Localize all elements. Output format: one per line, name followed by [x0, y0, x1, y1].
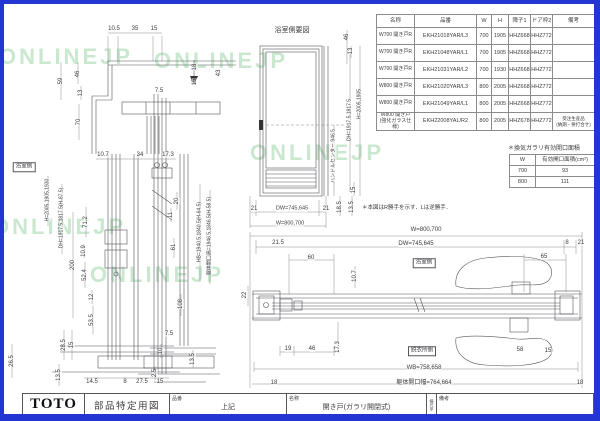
- side-label: 浴室側: [413, 258, 436, 268]
- parts-cell: 800: [477, 96, 492, 113]
- parts-cell: 受注生産品 (納期・要打合せ): [553, 113, 595, 131]
- dimension-label: 8: [123, 379, 126, 385]
- dimension-label: 18: [192, 64, 198, 71]
- doc-type: 部品特定用図: [85, 394, 170, 415]
- vent-table-title: ＊換気ガラリ有効開口面積: [508, 143, 580, 152]
- dimension-label: 18: [577, 380, 584, 386]
- parts-cell: HHZ772: [531, 28, 553, 45]
- side-label: 脱衣所側: [408, 346, 436, 356]
- dimension-label: 10.5: [108, 26, 120, 32]
- dimension-label: 7.5: [155, 88, 163, 94]
- handing-note: ＊本図はR勝手を示す．Lは逆勝手．: [362, 203, 451, 211]
- dimension-label: 200: [70, 260, 76, 270]
- parts-cell: HHZ668: [509, 28, 531, 45]
- product-name-cell: 名称 開き戸(ガラリ開閉式): [287, 394, 427, 415]
- side-label: 浴室側: [13, 162, 36, 172]
- parts-cell: HHZ668: [509, 79, 531, 96]
- dimension-label: DW=745,645: [398, 241, 433, 247]
- parts-column-header: H: [492, 15, 509, 28]
- dimension-label: 10.7: [352, 270, 358, 282]
- vent-cell: 800: [510, 177, 536, 188]
- dimension-label: 21: [578, 240, 585, 246]
- dimension-label: 61: [171, 244, 177, 251]
- dimension-label: WB=758,658: [407, 365, 442, 371]
- dimension-label: H=2005,1905: [358, 89, 363, 119]
- parts-column-header: 備考: [553, 15, 595, 28]
- parts-cell: [553, 28, 595, 45]
- dimension-label: 8: [565, 240, 568, 246]
- parts-cell: 700: [477, 62, 492, 79]
- parts-cell: EKH21048YAR/L1: [415, 45, 477, 62]
- parts-cell: EKH21031YAR/L2: [415, 62, 477, 79]
- parts-table-header: 名称品番WH障子1ドア枠2備考: [377, 15, 595, 28]
- parts-cell: 700: [477, 28, 492, 45]
- dimension-label: H=2005,1905,1930: [46, 179, 51, 222]
- dimension-label: 34: [137, 152, 144, 158]
- dimension-label: 60: [308, 255, 315, 261]
- parts-cell: HHZ772: [531, 96, 553, 113]
- scale-cell: 縮尺非: [427, 394, 437, 415]
- parts-cell: 2005: [492, 79, 509, 96]
- parts-cell: [553, 62, 595, 79]
- dimension-label: DH=1917.5,1817.5: [348, 99, 353, 141]
- vent-cell: 700: [510, 166, 536, 177]
- parts-cell: W700 開き戸R: [377, 45, 415, 62]
- dimension-label: 21: [323, 206, 330, 212]
- vent-table-header: W有効開口面積(cm²): [510, 155, 595, 166]
- dimension-label: W=800,700: [276, 221, 304, 227]
- parts-cell: HHZ772: [531, 113, 553, 131]
- parts-cell: 1905: [492, 28, 509, 45]
- dimension-label: 58: [517, 347, 524, 353]
- dimension-label: 20: [174, 198, 180, 205]
- table-row: W700 開き戸REKH21031YAR/L27001930HHZ668HHZ7…: [377, 62, 595, 79]
- dimension-label: 18: [271, 380, 278, 386]
- table-row: W700 開き戸REKH21048YAR/L17001905HHZ668HHZ7…: [377, 45, 595, 62]
- parts-cell: 2005: [492, 96, 509, 113]
- parts-cell: [553, 96, 595, 113]
- dimension-label: HB=1940.5,1840.5(H-64.5): [198, 202, 203, 262]
- table-row: W700 開き戸REKH21018YAR/L37001905HHZ668HHZ7…: [377, 28, 595, 45]
- parts-cell: [553, 79, 595, 96]
- dimension-label: 13.5: [349, 201, 355, 213]
- vent-cell: 111: [536, 177, 595, 188]
- parts-cell: EKH21018YAR/L3: [415, 28, 477, 45]
- parts-cell: 700: [477, 45, 492, 62]
- dimension-label: 71.2: [83, 216, 89, 228]
- dimension-label: 15: [351, 187, 357, 194]
- product-name-value: 開き戸(ガラリ開閉式): [287, 402, 426, 412]
- dimension-label: 46: [309, 346, 316, 352]
- dimension-label: 15: [157, 379, 164, 385]
- table-row: W800 開き戸REKH21020YAR/L38002005HHZ668HHZ7…: [377, 79, 595, 96]
- remarks-cell: 備考: [437, 394, 593, 415]
- parts-cell: HHZ668: [509, 96, 531, 113]
- toto-logo: TOTO: [23, 394, 85, 415]
- part-number-value: 上記: [170, 402, 286, 412]
- dimension-label: 70: [76, 119, 82, 126]
- dimension-label: 15: [151, 26, 158, 32]
- dimension-label: 13: [78, 90, 84, 97]
- dimension-label: 22: [242, 292, 248, 299]
- parts-cell: HHZ772: [531, 62, 553, 79]
- dimension-label: 11: [168, 212, 174, 218]
- part-number-label: 品番: [172, 395, 182, 402]
- dimension-label: 28.5: [61, 339, 67, 351]
- dimension-label: 15: [545, 348, 552, 354]
- dimension-label: 52.4: [82, 269, 88, 281]
- dimension-label: 18.5: [337, 201, 343, 213]
- dimension-label: 13.5: [56, 369, 62, 381]
- scale-text: 縮尺非: [430, 399, 434, 411]
- dimension-label: 14.5: [86, 379, 98, 385]
- dimension-label: 19: [285, 346, 292, 352]
- vent-column-header: W: [510, 155, 536, 166]
- parts-column-header: 名称: [377, 15, 415, 28]
- parts-cell: HHZ678: [509, 113, 531, 131]
- dimension-label: 17.3: [162, 152, 174, 158]
- dimension-label: 13: [348, 48, 354, 55]
- dimension-label: 21: [251, 206, 258, 212]
- dimension-label: 53.5: [89, 314, 95, 326]
- part-number-cell: 品番 上記: [170, 394, 287, 415]
- parts-cell: 1930: [492, 62, 509, 79]
- dimension-label: 59: [58, 78, 64, 85]
- table-row: W800 開き戸REKH21049YAR/L18002005HHZ668HHZ7…: [377, 96, 595, 113]
- parts-cell: HHZ772: [531, 45, 553, 62]
- elevation-title: 浴室側要図: [275, 25, 310, 35]
- parts-cell: W800 開き戸R: [377, 79, 415, 96]
- table-row: W800 開き戸 (強化ガラス仕様)EKH22008YAL/R28002005H…: [377, 113, 595, 131]
- dimension-label: 躯体開口高=1946.5,1846.5(H-58.5): [208, 197, 213, 275]
- dimension-label: 17.3: [335, 341, 341, 353]
- dimension-label: 27.5: [136, 379, 148, 385]
- dimension-label: 21.5: [272, 240, 284, 246]
- parts-cell: 800: [477, 113, 492, 131]
- dimension-label: 46: [75, 71, 81, 78]
- parts-cell: 1905: [492, 45, 509, 62]
- dimension-label: ハンドルセンター 946.5: [332, 129, 337, 183]
- dimension-label: 2.5: [152, 369, 158, 377]
- dimension-label: 15: [192, 79, 198, 86]
- dimension-label: 65: [541, 254, 548, 260]
- dimension-label: 43: [216, 70, 222, 77]
- vent-cell: 93: [536, 166, 595, 177]
- drawing-sheet: ONLINEJPONLINEJPONLINEJPONLINEJPONLINEJP: [0, 0, 600, 421]
- dimension-label: 13.5: [190, 353, 196, 365]
- parts-cell: W700 開き戸R: [377, 28, 415, 45]
- product-name-label: 名称: [289, 395, 299, 402]
- parts-column-header: 品番: [415, 15, 477, 28]
- vent-column-header: 有効開口面積(cm²): [536, 155, 595, 166]
- dimension-label: W=800,700: [411, 227, 442, 233]
- dimension-label: 10.7: [97, 152, 109, 158]
- parts-cell: HHZ668: [509, 62, 531, 79]
- table-row: 70093: [510, 166, 595, 177]
- parts-cell: EKH21020YAR/L3: [415, 79, 477, 96]
- parts-cell: W800 開き戸R: [377, 96, 415, 113]
- parts-cell: W700 開き戸R: [377, 62, 415, 79]
- parts-cell: EKH22008YAL/R2: [415, 113, 477, 131]
- parts-table: 名称品番WH障子1ドア枠2備考 W700 開き戸REKH21018YAR/L37…: [376, 14, 595, 131]
- dimension-label: 26.5: [9, 355, 15, 367]
- dimension-label: 躯体開口幅=764,664: [396, 380, 451, 386]
- dimension-label: 12: [89, 294, 95, 301]
- parts-cell: HHZ668: [509, 45, 531, 62]
- parts-cell: EKH21049YAR/L1: [415, 96, 477, 113]
- dimension-label: 35: [132, 26, 139, 32]
- vent-area-table: W有効開口面積(cm²) 70093800111: [509, 154, 595, 188]
- parts-column-header: W: [477, 15, 492, 28]
- remarks-label: 備考: [439, 395, 449, 402]
- dimension-label: 15: [69, 342, 75, 349]
- dimension-label: 7.5: [165, 331, 173, 337]
- parts-cell: 2005: [492, 113, 509, 131]
- parts-cell: 800: [477, 79, 492, 96]
- dimension-label: 10: [158, 348, 164, 355]
- parts-column-header: ドア枠2: [531, 15, 553, 28]
- title-block: TOTO 部品特定用図 品番 上記 名称 開き戸(ガラリ開閉式) 縮尺非 備考: [22, 393, 594, 416]
- parts-cell: [553, 45, 595, 62]
- dimension-label: 46: [344, 34, 350, 41]
- parts-cell: HHZ772: [531, 79, 553, 96]
- dimension-label: 10.9: [81, 245, 87, 257]
- parts-column-header: 障子1: [509, 15, 531, 28]
- table-row: 800111: [510, 177, 595, 188]
- parts-cell: W800 開き戸 (強化ガラス仕様): [377, 113, 415, 131]
- dimension-label: DW=745,645: [276, 206, 308, 212]
- dimension-label: 108: [178, 299, 184, 309]
- dimension-label: DH=1917.5,1817.5(H-87.5): [60, 188, 65, 248]
